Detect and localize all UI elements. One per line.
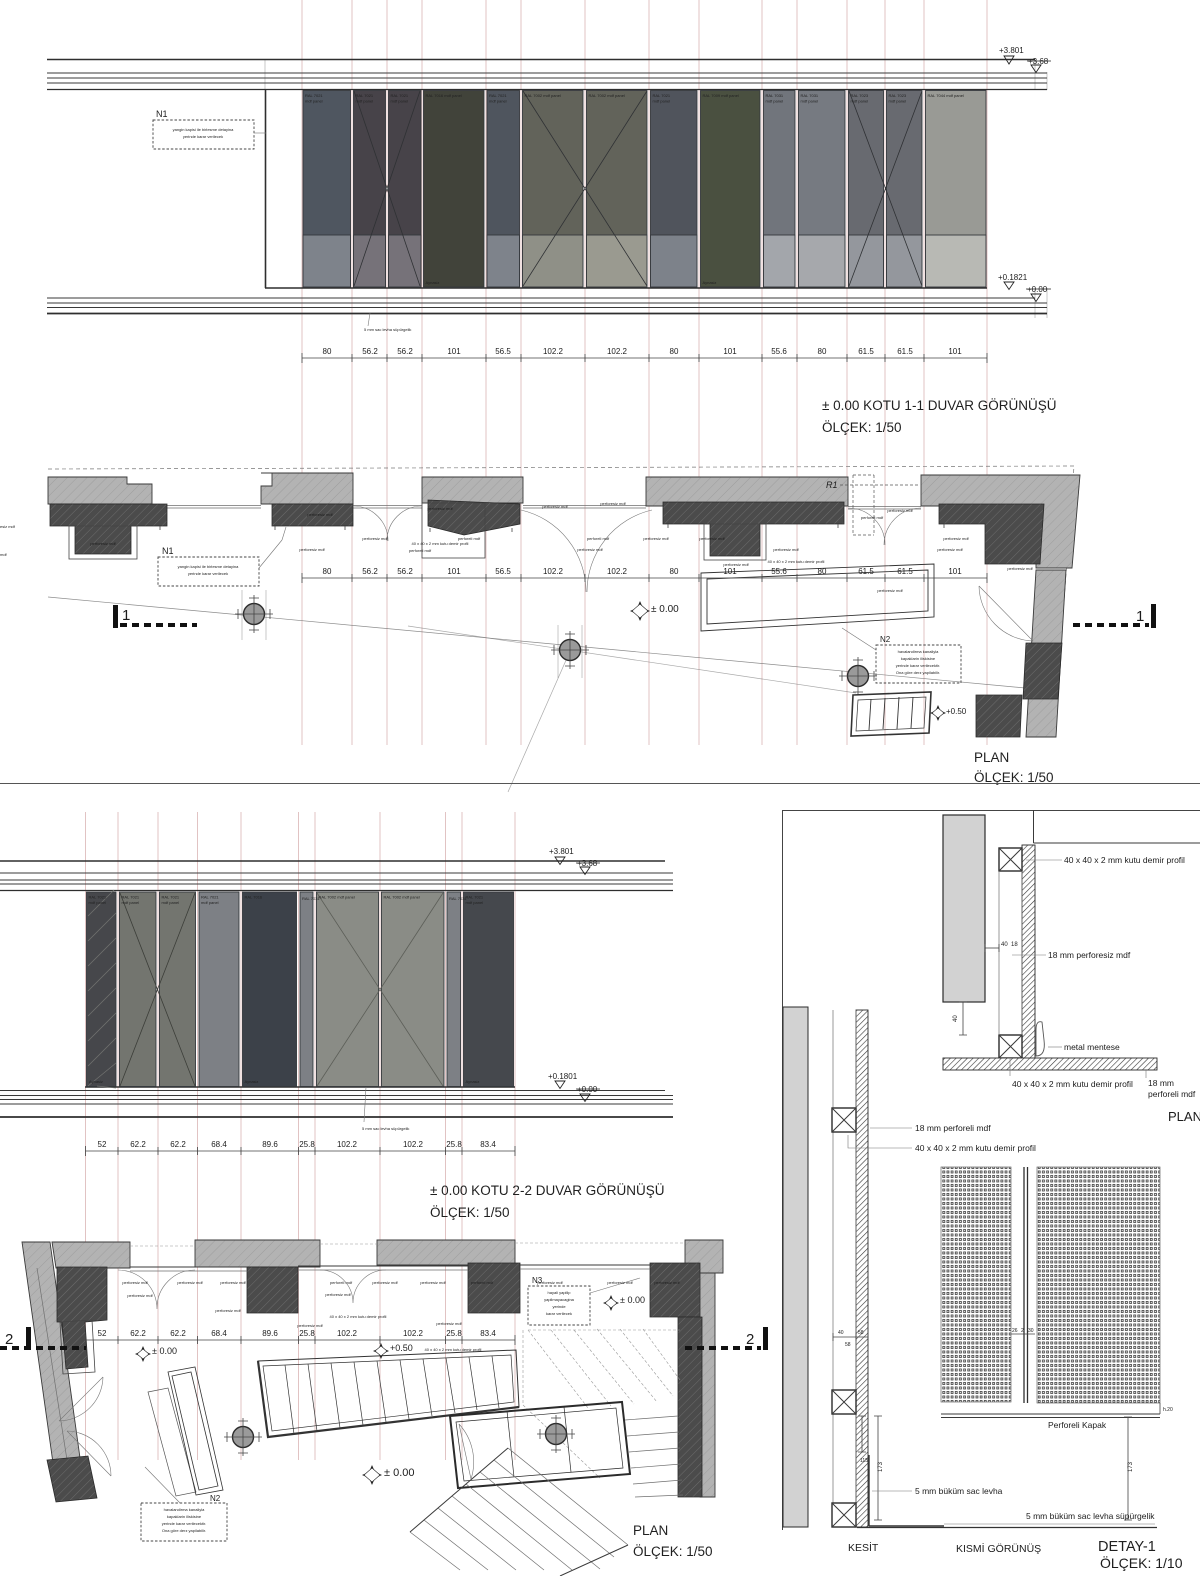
svg-text:40 x 40 x 2 mm kutu demir prof: 40 x 40 x 2 mm kutu demir profil (425, 1347, 482, 1352)
svg-text:173: 173 (1128, 1461, 1134, 1472)
svg-text:68.4: 68.4 (211, 1140, 227, 1149)
svg-text:+0.00: +0.00 (577, 1085, 598, 1094)
svg-text:56.2: 56.2 (397, 347, 413, 356)
svg-text:2: 2 (746, 1331, 754, 1348)
svg-text:perforeli mdf: perforeli mdf (409, 548, 432, 553)
svg-text:yerinde karar verilecek: yerinde karar verilecek (183, 134, 223, 139)
svg-text:101: 101 (447, 347, 461, 356)
svg-text:25.8: 25.8 (446, 1329, 462, 1338)
svg-text:KESİT: KESİT (848, 1541, 879, 1554)
svg-text:1: 1 (1136, 608, 1144, 625)
svg-text:18 mm perforesiz mdf: 18 mm perforesiz mdf (1048, 950, 1131, 960)
svg-text:61.5: 61.5 (897, 347, 913, 356)
svg-text:perforesiz mdf: perforesiz mdf (699, 536, 725, 541)
svg-text:N1: N1 (156, 109, 168, 119)
svg-text:perforesiz mdf: perforesiz mdf (362, 536, 388, 541)
svg-text:Aynasiz: Aynasiz (245, 1079, 259, 1084)
svg-text:mdf panel: mdf panel (391, 99, 409, 104)
svg-text:40: 40 (838, 1330, 844, 1336)
svg-text:± 0.00: ± 0.00 (152, 1346, 177, 1356)
svg-text:N2: N2 (880, 635, 891, 644)
svg-text:80: 80 (323, 567, 332, 576)
svg-text:40 x 40 x 2 mm kutu demir prof: 40 x 40 x 2 mm kutu demir profil (915, 1143, 1036, 1153)
svg-text:N2: N2 (210, 1494, 221, 1503)
svg-text:5 mm sac levha süpürgelik: 5 mm sac levha süpürgelik (364, 327, 411, 332)
svg-text:mdf panel: mdf panel (122, 900, 140, 905)
svg-text:58: 58 (858, 1330, 864, 1336)
svg-text:+0.1801: +0.1801 (548, 1072, 578, 1081)
svg-text:R1: R1 (826, 480, 838, 490)
svg-text:101: 101 (948, 567, 962, 576)
svg-text:mdf panel: mdf panel (466, 900, 484, 905)
svg-text:perforeli mdf: perforeli mdf (587, 536, 610, 541)
svg-text:Aynasiz: Aynasiz (703, 280, 717, 285)
svg-text:102.2: 102.2 (607, 347, 628, 356)
svg-text:RAL 7021: RAL 7021 (122, 895, 140, 900)
svg-text:83.4: 83.4 (480, 1140, 496, 1149)
svg-text:perforesiz mdf: perforesiz mdf (427, 506, 453, 511)
svg-text:83.4: 83.4 (480, 1329, 496, 1338)
svg-text:RAL 7021: RAL 7021 (356, 93, 374, 98)
svg-text:+3.801: +3.801 (549, 847, 574, 856)
svg-text:40 x 40 x 2 mm kutu demir prof: 40 x 40 x 2 mm kutu demir profil (330, 1314, 387, 1319)
svg-text:Ona göre derz yapilabilir.: Ona göre derz yapilabilir. (162, 1528, 206, 1533)
svg-text:perforesiz mdf: perforesiz mdf (307, 512, 333, 517)
svg-text:101: 101 (948, 347, 962, 356)
svg-text:173: 173 (878, 1461, 884, 1472)
svg-text:+0.50: +0.50 (390, 1343, 413, 1353)
svg-text:DETAY-1: DETAY-1 (1098, 1539, 1156, 1555)
svg-text:40: 40 (953, 1015, 959, 1022)
svg-text:perforesiz mdf: perforesiz mdf (297, 1323, 323, 1328)
svg-text:perforesiz mdf: perforesiz mdf (436, 1321, 462, 1326)
svg-text:mdf panel: mdf panel (766, 99, 784, 104)
svg-text:perforesiz mdf: perforesiz mdf (90, 541, 116, 546)
svg-text:yangin kapisi ile birlesme det: yangin kapisi ile birlesme detayina (173, 127, 234, 132)
svg-text:115: 115 (860, 1458, 868, 1464)
svg-text:RAL 7021: RAL 7021 (466, 895, 484, 900)
svg-text:perforesiz mdf: perforesiz mdf (372, 1280, 398, 1285)
svg-text:18 mm perforeli mdf: 18 mm perforeli mdf (915, 1123, 991, 1133)
svg-text:56.5: 56.5 (495, 347, 511, 356)
svg-text:perforesiz mdf: perforesiz mdf (177, 1280, 203, 1285)
svg-text:62.2: 62.2 (170, 1140, 186, 1149)
svg-text:RAL 7023: RAL 7023 (851, 93, 869, 98)
svg-text:perforeli mdf: perforeli mdf (471, 1280, 494, 1285)
svg-text:+0.00: +0.00 (1027, 285, 1048, 294)
svg-text:perforesiz mdf: perforesiz mdf (542, 504, 568, 509)
svg-text:RAL 7021: RAL 7021 (201, 895, 219, 900)
svg-text:26: 26 (1012, 1328, 1018, 1334)
svg-text:mdf panel: mdf panel (851, 99, 869, 104)
svg-text:Aynasiz: Aynasiz (426, 280, 440, 285)
svg-text:101: 101 (723, 567, 737, 576)
svg-text:102.2: 102.2 (543, 567, 564, 576)
svg-text:havalandirma kanaliyla: havalandirma kanaliyla (898, 649, 939, 654)
svg-text:RAL 7021: RAL 7021 (162, 895, 180, 900)
svg-text:perforesiz mdf: perforesiz mdf (127, 1293, 153, 1298)
svg-text:68.4: 68.4 (211, 1329, 227, 1338)
svg-text:perforesiz mdf: perforesiz mdf (600, 501, 626, 506)
svg-text:yerinde karar verilecektir.: yerinde karar verilecektir. (162, 1521, 206, 1526)
svg-text:80: 80 (818, 567, 827, 576)
svg-text:101: 101 (447, 567, 461, 576)
svg-text:perforesiz mdf: perforesiz mdf (220, 1280, 246, 1285)
svg-text:62.2: 62.2 (130, 1329, 146, 1338)
svg-text:89.6: 89.6 (262, 1140, 278, 1149)
svg-text:yapilmayacagina: yapilmayacagina (544, 1297, 575, 1302)
svg-text:102.2: 102.2 (607, 567, 628, 576)
svg-text:kapaklarin iliskisine: kapaklarin iliskisine (167, 1514, 202, 1519)
svg-text:perforesiz mdf: perforesiz mdf (299, 547, 325, 552)
svg-text:mdf panel: mdf panel (356, 99, 374, 104)
svg-text:RAL 7009 mdf panel: RAL 7009 mdf panel (703, 93, 739, 98)
svg-text:80: 80 (818, 347, 827, 356)
svg-text:PLAN: PLAN (974, 750, 1009, 765)
svg-text:56.2: 56.2 (362, 347, 378, 356)
svg-text:62.2: 62.2 (170, 1329, 186, 1338)
svg-text:RAL 7002 mdf panel: RAL 7002 mdf panel (525, 93, 561, 98)
svg-text:56.2: 56.2 (397, 567, 413, 576)
svg-text:yerinde: yerinde (552, 1304, 566, 1309)
svg-text:mdf panel: mdf panel (305, 99, 323, 104)
svg-text:yerinde karar verilecektir.: yerinde karar verilecektir. (896, 663, 940, 668)
svg-text:102.2: 102.2 (337, 1140, 358, 1149)
svg-text:RAL 7002 mdf panel: RAL 7002 mdf panel (384, 895, 420, 900)
svg-text:52: 52 (98, 1140, 107, 1149)
svg-text:perforeli mdf: perforeli mdf (1148, 1089, 1196, 1099)
svg-text:1: 1 (122, 607, 130, 624)
svg-text:mdf panel: mdf panel (162, 900, 180, 905)
svg-text:RAL 7031: RAL 7031 (766, 93, 784, 98)
svg-text:RAL 7021: RAL 7021 (653, 93, 671, 98)
svg-text:Perforeli Kapak: Perforeli Kapak (1048, 1420, 1107, 1430)
svg-text:perforesiz mdf: perforesiz mdf (643, 536, 669, 541)
svg-text:+3.801: +3.801 (999, 46, 1024, 55)
svg-text:PLAN: PLAN (1168, 1109, 1200, 1124)
svg-text:mdf panel: mdf panel (489, 99, 507, 104)
svg-text:40 x 40 x 2 mm kutu demir prof: 40 x 40 x 2 mm kutu demir profil (412, 541, 469, 546)
svg-text:RAL 7021: RAL 7021 (89, 895, 107, 900)
svg-text:perforesiz mdf: perforesiz mdf (215, 1308, 241, 1313)
svg-text:89.6: 89.6 (262, 1329, 278, 1338)
svg-text:perforeli mdf: perforeli mdf (458, 536, 481, 541)
svg-text:ÖLÇEK: 1/10: ÖLÇEK: 1/10 (1100, 1554, 1183, 1571)
svg-text:RAL 7021: RAL 7021 (391, 93, 409, 98)
svg-text:61.5: 61.5 (858, 347, 874, 356)
svg-text:80: 80 (670, 347, 679, 356)
svg-text:h.20: h.20 (1163, 1407, 1173, 1413)
svg-text:mdf panel: mdf panel (801, 99, 819, 104)
svg-text:RAL 7016 mdf panel: RAL 7016 mdf panel (426, 93, 462, 98)
svg-text:metal mentese: metal mentese (1064, 1042, 1120, 1052)
svg-text:25.8: 25.8 (299, 1329, 315, 1338)
svg-text:62.2: 62.2 (130, 1140, 146, 1149)
svg-text:Aynasiz: Aynasiz (466, 1079, 480, 1084)
svg-text:hayali yapilip: hayali yapilip (548, 1290, 572, 1295)
svg-text:102.2: 102.2 (337, 1329, 358, 1338)
svg-text:perforesiz mdf: perforesiz mdf (537, 1280, 563, 1285)
svg-text:kapaklarin iliskisine: kapaklarin iliskisine (901, 656, 936, 661)
svg-text:Aynasiz: Aynasiz (89, 1079, 103, 1084)
svg-text:+0.1821: +0.1821 (998, 273, 1028, 282)
svg-text:61.5: 61.5 (858, 567, 874, 576)
svg-text:80: 80 (670, 567, 679, 576)
svg-text:56.5: 56.5 (495, 567, 511, 576)
svg-text:± 0.00: ± 0.00 (620, 1295, 645, 1305)
svg-text:40 x 40 x 2 mm kutu demir prof: 40 x 40 x 2 mm kutu demir profil (768, 559, 825, 564)
svg-text:25.8: 25.8 (446, 1140, 462, 1149)
svg-text:± 0.00 KOTU 2-2 DUVAR GÖRÜNÜŞÜ: ± 0.00 KOTU 2-2 DUVAR GÖRÜNÜŞÜ (430, 1183, 664, 1198)
svg-text:karar verilecek: karar verilecek (546, 1311, 572, 1316)
svg-text:80: 80 (323, 347, 332, 356)
svg-text:RAL 7031: RAL 7031 (801, 93, 819, 98)
svg-text:yangin kapisi ile birlesme det: yangin kapisi ile birlesme detayina (178, 564, 239, 569)
svg-text:5 mm büküm sac levha süpürgeli: 5 mm büküm sac levha süpürgelik (1026, 1511, 1155, 1521)
svg-text:perforesiz mdf: perforesiz mdf (325, 1292, 351, 1297)
svg-text:2: 2 (5, 1331, 13, 1348)
svg-text:mdf panel: mdf panel (653, 99, 671, 104)
svg-text:esiz mdf: esiz mdf (0, 524, 16, 529)
svg-text:ÖLÇEK: 1/50: ÖLÇEK: 1/50 (430, 1205, 510, 1220)
svg-text:perforesiz mdf: perforesiz mdf (943, 536, 969, 541)
svg-text:yerinde karar verilecek: yerinde karar verilecek (188, 571, 228, 576)
svg-text:ÖLÇEK: 1/50: ÖLÇEK: 1/50 (822, 420, 902, 435)
svg-text:RAL 7023: RAL 7023 (889, 93, 907, 98)
svg-text:perforesiz mdf: perforesiz mdf (420, 1280, 446, 1285)
svg-text:perforesiz mdf: perforesiz mdf (654, 1280, 680, 1285)
svg-text:52: 52 (98, 1329, 107, 1338)
svg-text:N1: N1 (162, 546, 174, 556)
svg-text:mdf: mdf (0, 552, 8, 557)
svg-text:61.5: 61.5 (897, 567, 913, 576)
svg-text:5 mm sac levha süpürgelik: 5 mm sac levha süpürgelik (362, 1126, 409, 1131)
svg-text:RAL 7044 mdf panel: RAL 7044 mdf panel (928, 93, 964, 98)
svg-text:ÖLÇEK: 1/50: ÖLÇEK: 1/50 (633, 1544, 713, 1559)
svg-text:5 mm büküm sac levha: 5 mm büküm sac levha (915, 1486, 1003, 1496)
svg-text:+0.50: +0.50 (946, 707, 967, 716)
svg-text:56.2: 56.2 (362, 567, 378, 576)
svg-text:102.2: 102.2 (403, 1140, 424, 1149)
svg-text:perforesiz mdf: perforesiz mdf (723, 562, 749, 567)
svg-text:perforesiz mdf: perforesiz mdf (877, 588, 903, 593)
svg-text:ÖLÇEK: 1/50: ÖLÇEK: 1/50 (974, 770, 1054, 785)
svg-text:havalandirma kanaliyla: havalandirma kanaliyla (164, 1507, 205, 1512)
svg-text:± 0.00: ± 0.00 (651, 604, 679, 615)
svg-text:RAL 7021: RAL 7021 (305, 93, 323, 98)
svg-text:102.2: 102.2 (543, 347, 564, 356)
svg-text:RAL 7016: RAL 7016 (245, 895, 263, 900)
svg-text:18: 18 (1011, 942, 1018, 948)
svg-text:Ona göre derz yapilabilir.: Ona göre derz yapilabilir. (896, 670, 940, 675)
svg-text:mdf panel: mdf panel (889, 99, 907, 104)
svg-text:perforeli mdf: perforeli mdf (861, 515, 884, 520)
svg-text:perforesiz mdf: perforesiz mdf (1007, 566, 1033, 571)
svg-text:perforesiz mdf: perforesiz mdf (773, 547, 799, 552)
svg-text:RAL 7021: RAL 7021 (489, 93, 507, 98)
svg-text:RAL 7002 mdf panel: RAL 7002 mdf panel (319, 895, 355, 900)
svg-text:perforesiz mdf: perforesiz mdf (937, 547, 963, 552)
svg-text:58: 58 (845, 1342, 851, 1348)
svg-text:RAL 7002 mdf panel: RAL 7002 mdf panel (589, 93, 625, 98)
svg-text:perforesiz mdf: perforesiz mdf (607, 1280, 633, 1285)
svg-text:102.2: 102.2 (403, 1329, 424, 1338)
svg-text:perforesiz mdf: perforesiz mdf (122, 1280, 148, 1285)
svg-text:40: 40 (1001, 942, 1008, 948)
svg-text:30: 30 (1028, 1328, 1034, 1334)
svg-text:perforesiz mdf: perforesiz mdf (887, 508, 913, 513)
svg-text:55.6: 55.6 (771, 347, 787, 356)
svg-text:± 0.00: ± 0.00 (384, 1467, 415, 1479)
svg-text:40 x 40 x 2 mm kutu demir prof: 40 x 40 x 2 mm kutu demir profil (1064, 855, 1185, 865)
svg-text:101: 101 (723, 347, 737, 356)
svg-text:25.8: 25.8 (299, 1140, 315, 1149)
svg-text:2: 2 (1021, 1328, 1024, 1334)
svg-text:mdf panel: mdf panel (89, 900, 107, 905)
svg-text:± 0.00 KOTU 1-1 DUVAR GÖRÜNÜŞÜ: ± 0.00 KOTU 1-1 DUVAR GÖRÜNÜŞÜ (822, 398, 1056, 413)
svg-text:40 x 40 x 2 mm kutu demir prof: 40 x 40 x 2 mm kutu demir profil (1012, 1079, 1133, 1089)
svg-text:perforeli mdf: perforeli mdf (330, 1280, 353, 1285)
svg-text:55.6: 55.6 (771, 567, 787, 576)
svg-text:perforesiz mdf: perforesiz mdf (577, 547, 603, 552)
svg-text:KISMİ GÖRÜNÜŞ: KISMİ GÖRÜNÜŞ (956, 1542, 1041, 1555)
svg-text:PLAN: PLAN (633, 1523, 668, 1538)
svg-text:18 mm: 18 mm (1148, 1078, 1174, 1088)
svg-text:mdf panel: mdf panel (201, 900, 219, 905)
